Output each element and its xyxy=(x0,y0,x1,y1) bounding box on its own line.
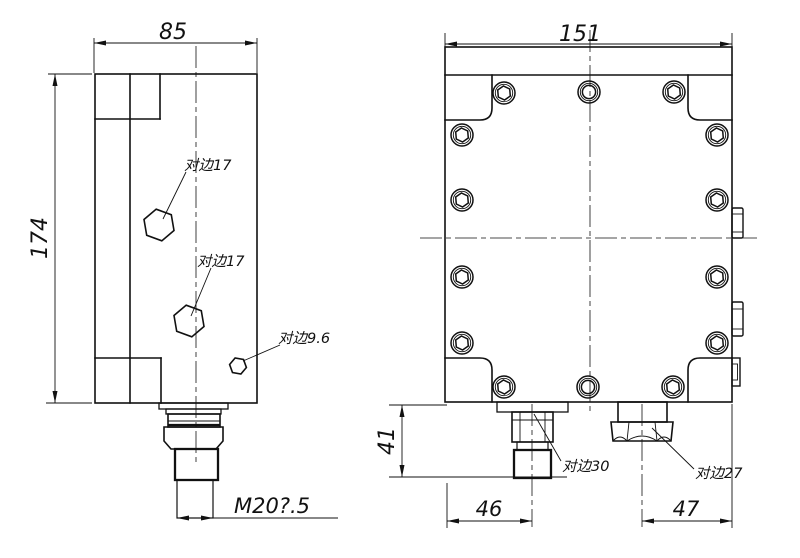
label-port-left: 对边30 xyxy=(562,458,609,475)
side-view: 对边30 对边27 151 4 xyxy=(375,22,758,528)
arrowhead-right xyxy=(720,519,732,524)
port-left-neck xyxy=(517,442,548,450)
label-hex-top: 对边17 xyxy=(184,157,232,174)
arrowhead-left xyxy=(447,519,459,524)
leader-port-left xyxy=(534,414,561,461)
leader-hex-top xyxy=(163,172,186,219)
hex-bolt xyxy=(662,376,684,398)
arrowhead-left xyxy=(642,519,654,524)
label-hex-mid: 对边17 xyxy=(197,253,245,270)
dim-text-41: 41 xyxy=(375,427,400,455)
drawing-svg: 对边17 对边17 对边9.6 85 xyxy=(0,0,800,558)
hex-bolt xyxy=(493,82,515,104)
dim-text-151: 151 xyxy=(559,22,601,47)
port-left-hex xyxy=(512,412,553,442)
port-left-flange xyxy=(497,402,568,412)
corner-contour-top-right xyxy=(688,75,732,120)
port-right-nut-facet xyxy=(627,422,629,441)
hex-bolt xyxy=(663,81,685,103)
edge-plug-3 xyxy=(732,358,740,386)
hex-bolt xyxy=(451,266,473,288)
dim-text-47: 47 xyxy=(673,497,700,521)
arrowhead-left xyxy=(177,516,189,521)
arrowhead-top xyxy=(53,74,58,86)
dim-offset-46: 46 xyxy=(447,483,532,528)
engineering-drawing: 对边17 对边17 对边9.6 85 xyxy=(0,0,800,558)
dim-text-174: 174 xyxy=(28,217,53,259)
hex-bolt xyxy=(706,124,728,146)
hex-bolt xyxy=(451,332,473,354)
front-body-outline xyxy=(95,74,257,403)
dim-width-151: 151 xyxy=(445,22,732,47)
corner-contour-top-left xyxy=(445,75,492,120)
hex-hole-mid xyxy=(174,305,204,337)
socket-bolt xyxy=(577,376,599,398)
hex-hole-top xyxy=(144,209,174,241)
arrowhead-bottom xyxy=(400,465,405,477)
hex-bolt xyxy=(451,124,473,146)
bottom-port-left: 对边30 xyxy=(497,402,609,527)
front-view: 对边17 对边17 对边9.6 85 xyxy=(28,20,338,521)
edge-plug-2 xyxy=(732,302,743,336)
dim-text-46: 46 xyxy=(476,497,503,521)
arrowhead-bottom xyxy=(53,391,58,403)
dim-text-85: 85 xyxy=(159,20,187,45)
arrowhead-right xyxy=(245,41,257,46)
hex-bolt xyxy=(706,266,728,288)
edge-plug-1 xyxy=(732,208,743,238)
side-port-plugs xyxy=(732,208,743,386)
fitting-body xyxy=(175,449,218,480)
edge-plug-3-inner xyxy=(732,364,738,380)
corner-contour-bottom-left xyxy=(445,358,492,402)
hex-bolt xyxy=(493,376,515,398)
dim-thread-m20: M20?.5 xyxy=(177,494,338,521)
port-left-body xyxy=(514,450,551,478)
dim-port-height-41: 41 xyxy=(375,405,567,477)
hex-bolt xyxy=(706,189,728,211)
arrowhead-right xyxy=(720,42,732,47)
fitting-step-1 xyxy=(159,403,228,409)
socket-bolt xyxy=(578,81,600,103)
arrowhead-right xyxy=(520,519,532,524)
leader-port-right xyxy=(652,428,694,469)
arrowhead-right xyxy=(201,516,213,521)
dim-width-85: 85 xyxy=(94,20,257,73)
arrowhead-left xyxy=(445,42,457,47)
front-bottom-fitting xyxy=(159,403,228,518)
dim-height-174: 174 xyxy=(28,74,92,403)
label-hex-small: 对边9.6 xyxy=(278,330,330,347)
arrowhead-left xyxy=(94,41,106,46)
corner-contour-bottom-right xyxy=(688,358,732,402)
hex-bolt xyxy=(451,189,473,211)
bolt-pattern xyxy=(451,81,728,398)
leader-hex-mid xyxy=(191,268,211,316)
port-right-boss xyxy=(618,402,667,422)
fitting-nut xyxy=(164,427,223,449)
fitting-thread-stub xyxy=(177,480,213,518)
label-port-right: 对边27 xyxy=(695,465,743,482)
leader-hex-small xyxy=(243,345,280,361)
arrowhead-top xyxy=(400,405,405,417)
dim-text-thread: M20?.5 xyxy=(234,494,310,518)
hex-bolt xyxy=(706,332,728,354)
